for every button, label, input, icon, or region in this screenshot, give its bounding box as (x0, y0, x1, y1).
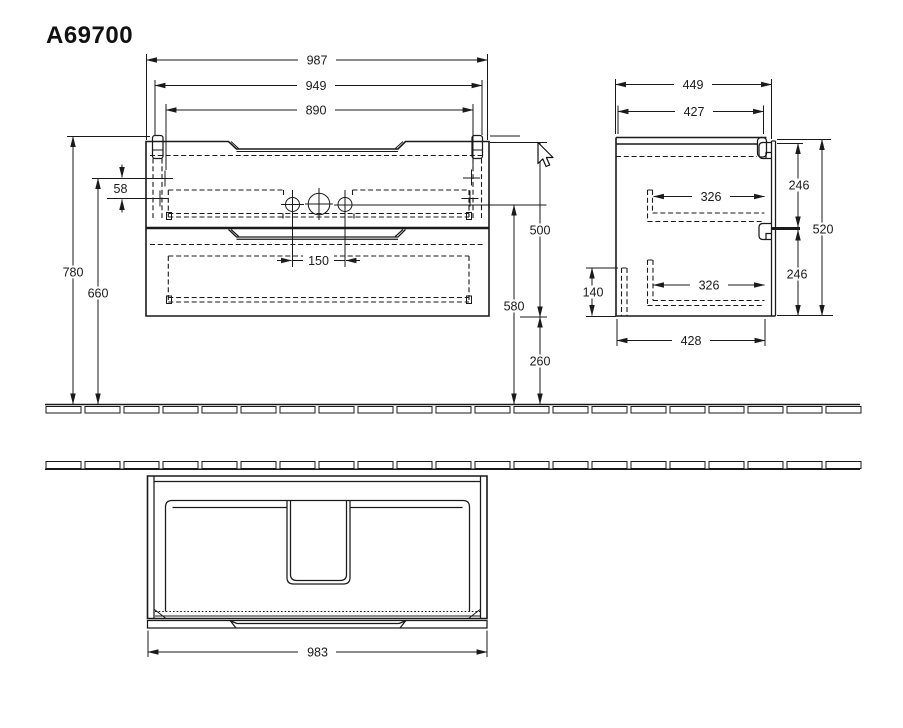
side-drawer-front-hidden (622, 268, 628, 316)
dim-side-lower-drawer-depth: 326 (654, 279, 765, 293)
dim-label: 260 (530, 355, 551, 369)
dim-front-rail-width: 949 (155, 79, 482, 93)
dim-side-upper-drawer-depth: 326 (654, 190, 765, 204)
dim-side-lower-section: 246 (778, 230, 816, 316)
dim-label: 780 (63, 266, 84, 280)
floor-line-lower (45, 462, 861, 470)
dim-label: 428 (681, 334, 702, 348)
plan-sink-cutout (287, 501, 350, 585)
technical-drawing: 987 949 890 58 780 (0, 0, 903, 728)
plan-drawer-box (166, 501, 470, 612)
dim-label: 427 (684, 105, 705, 119)
dim-front-rail-hole-gap: 58 (108, 165, 134, 213)
dim-front-overall-width: 987 (147, 54, 488, 68)
dim-label: 150 (308, 254, 329, 268)
side-view: 449 427 326 326 246 (574, 78, 842, 348)
dim-label: 140 (583, 286, 604, 300)
front-extension-lines (67, 54, 547, 317)
dim-label: 58 (114, 182, 128, 196)
dim-side-front-bottom-height: 140 (574, 268, 612, 316)
dim-side-top-depth: 427 (618, 105, 764, 119)
dim-side-body-height: 520 (804, 140, 842, 316)
dim-label: 326 (701, 190, 722, 204)
dim-label: 246 (787, 268, 808, 282)
front-hidden-edges (150, 156, 485, 245)
dim-label: 449 (683, 78, 704, 92)
drawing-canvas: A69700 (0, 0, 903, 728)
floor-hatch-pattern (46, 407, 861, 414)
plan-inner-walls (154, 476, 481, 619)
wall-hatch-pattern (46, 462, 861, 469)
dim-label: 987 (307, 54, 328, 68)
dim-label: 246 (789, 179, 810, 193)
dim-side-overall-depth: 449 (616, 78, 772, 92)
dim-side-bottom-depth: 428 (617, 334, 765, 348)
front-view: 987 949 890 58 780 (55, 54, 558, 405)
dim-label: 660 (88, 287, 109, 301)
dim-front-height-to-top: 780 (55, 137, 91, 405)
dim-label: 890 (306, 104, 327, 118)
dim-label: 326 (699, 279, 720, 293)
dim-front-inner-width: 890 (166, 104, 473, 118)
dim-side-upper-section: 246 (780, 144, 818, 228)
plan-view: 983 (148, 476, 488, 660)
dim-front-body-height: 500 (522, 143, 558, 318)
dim-label: 983 (307, 646, 328, 660)
plan-corner-joints (155, 610, 481, 619)
plan-cabinet-outline (148, 476, 488, 619)
dim-label: 520 (813, 223, 834, 237)
dim-plan-body-width: 983 (148, 646, 487, 660)
front-hanging-rail-hidden (153, 159, 482, 219)
dim-front-height-to-rail-holes: 660 (80, 179, 116, 405)
front-mounting-crosses (160, 170, 480, 207)
front-lower-handle-recess (229, 230, 406, 240)
front-upper-handle-recess (231, 142, 403, 152)
dim-front-floor-clearance: 260 (522, 317, 558, 404)
floor-line-upper (45, 405, 861, 414)
plan-front-panel (148, 621, 488, 629)
dim-label: 580 (504, 300, 525, 314)
dim-label: 500 (530, 224, 551, 238)
dim-label: 949 (306, 79, 327, 93)
